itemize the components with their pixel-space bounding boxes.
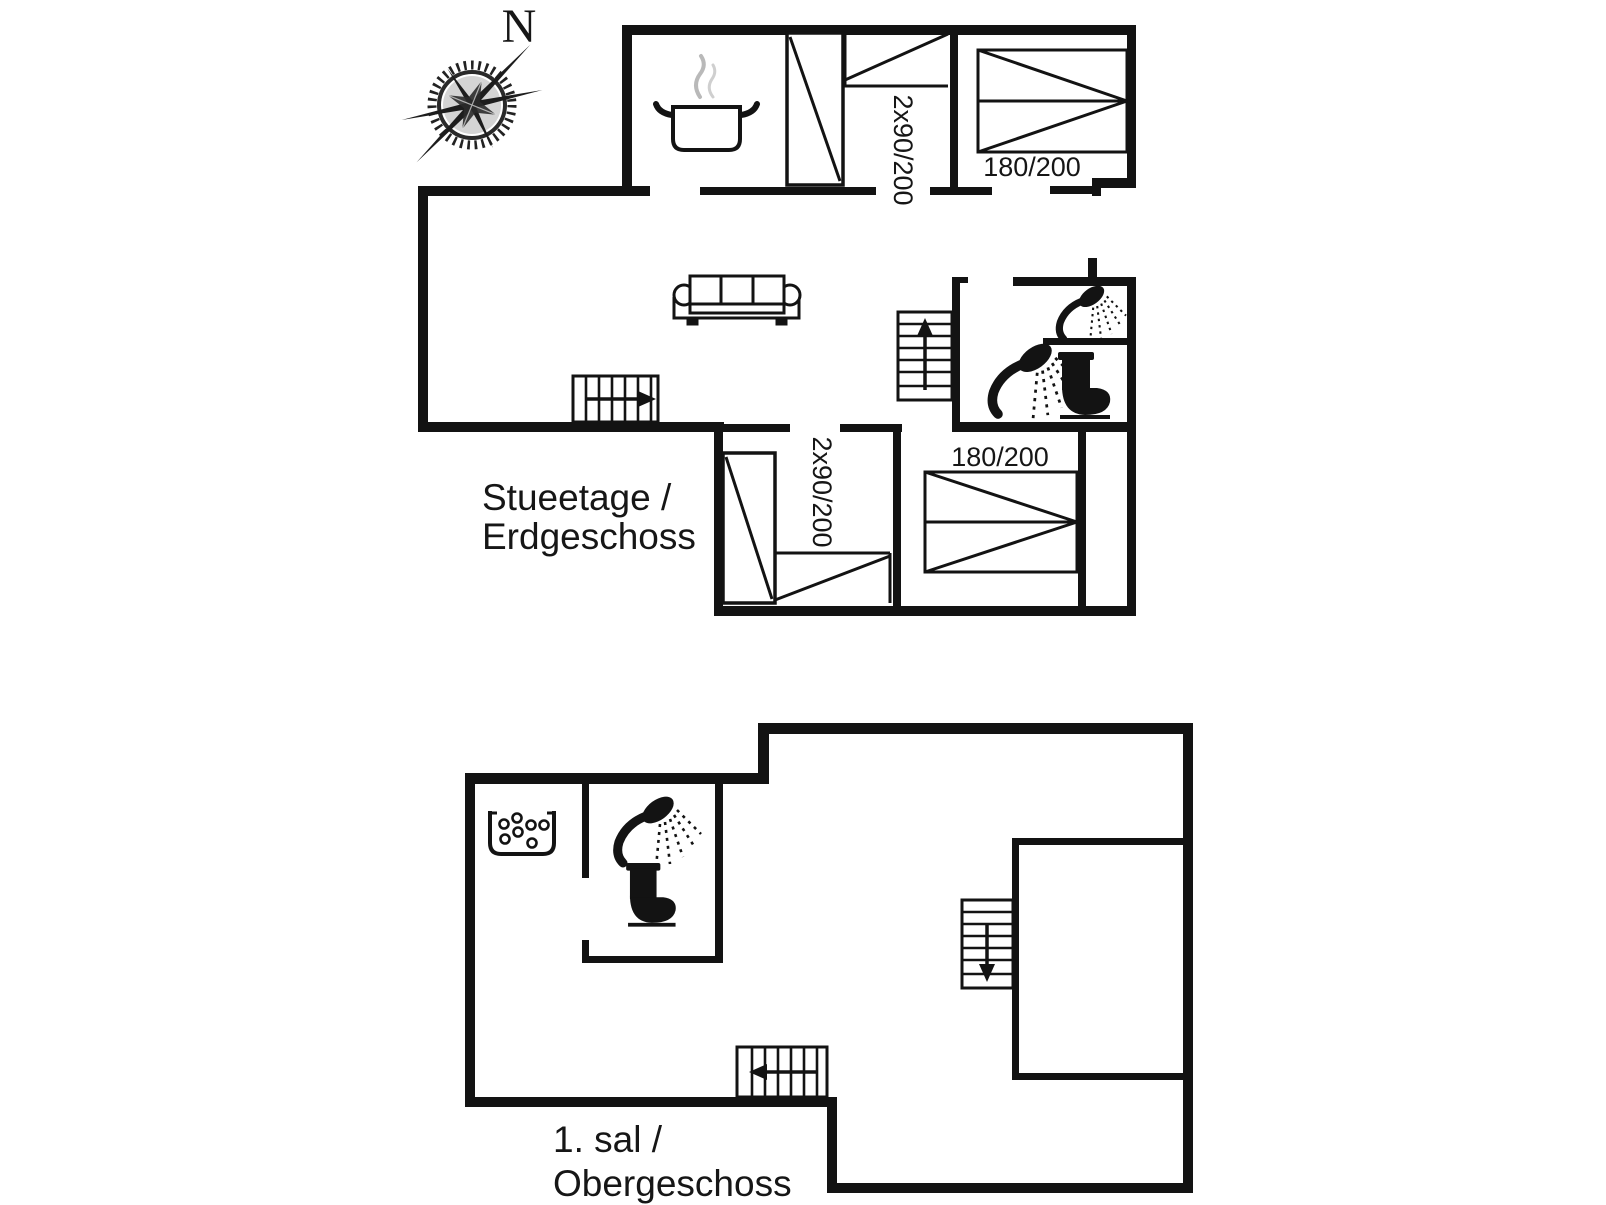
shower-head-icon: [618, 791, 701, 868]
plan-drawing-segment: [925, 472, 1077, 522]
plan-drawing-segment: [1012, 1073, 1193, 1080]
plan-drawing-segment: [527, 821, 536, 830]
plan-drawing-segment: [777, 318, 786, 324]
plan-drawing-segment: [688, 318, 697, 324]
plan-drawing-segment: [930, 187, 992, 195]
plan-drawing-segment: [622, 25, 1135, 35]
plan-drawing-segment: [1078, 424, 1086, 609]
plan-drawing-segment: [1013, 277, 1136, 286]
single-bed-top: [978, 50, 1127, 152]
shower-head-icon: [1059, 281, 1126, 342]
plan-drawing-segment: [714, 606, 1136, 616]
plan-drawing-segment: [758, 723, 1193, 734]
north-label: N: [502, 0, 537, 53]
plan-drawing-segment: [840, 424, 902, 432]
plan-drawing-segment: [1183, 723, 1193, 1193]
stairs-right-arrow-icon: [573, 376, 658, 422]
plan-drawing-segment: [465, 773, 475, 1107]
plan-drawing-segment: [696, 56, 704, 97]
plan-drawing-segment: [582, 956, 723, 963]
plan-drawing-segment: [656, 104, 672, 115]
plan-drawing-segment: [700, 187, 876, 195]
plan-drawing-segment: [418, 422, 724, 432]
double-bed-top: 2x90/200: [845, 33, 948, 206]
plan-drawing-segment: Stueetage /: [482, 477, 672, 518]
stairs-down-arrow-icon: [962, 900, 1013, 988]
plan-drawing-segment: [978, 50, 1127, 101]
single-bed-bottom: [925, 472, 1077, 572]
plan-drawing-segment: [540, 821, 549, 830]
plan-drawing-segment: [622, 25, 632, 195]
plan-drawing-segment: Obergeschoss: [553, 1163, 792, 1204]
plan-drawing-segment: [513, 814, 522, 823]
plan-drawing-segment: [1127, 422, 1136, 616]
plan-drawing-segment: [709, 65, 715, 97]
plan-drawing-segment: [893, 424, 901, 609]
ground-floor-plan: 2x90/200 180/200: [418, 25, 1136, 616]
upper-floor-plan: 1. sal / Obergeschoss: [465, 723, 1193, 1204]
plan-drawing-segment: [714, 424, 790, 432]
upper-floor-label: 1. sal / Obergeschoss: [553, 1119, 792, 1204]
plan-drawing-segment: [673, 107, 740, 150]
floor-plan-canvas: N: [0, 0, 1606, 1205]
plan-drawing-segment: [528, 839, 537, 848]
plan-drawing-segment: [978, 101, 1127, 152]
plan-drawing-segment: [925, 522, 1077, 572]
plan-drawing-segment: [1050, 186, 1094, 194]
plan-drawing-segment: [741, 104, 757, 115]
plan-drawing-segment: [467, 773, 769, 784]
plan-drawing-segment: [514, 828, 523, 837]
cooking-pot-icon: [656, 56, 757, 150]
wardrobe-icon: [787, 33, 843, 185]
double-bed-bottom: 2x90/200: [775, 436, 890, 603]
stairs-left-arrow-icon: [737, 1047, 827, 1097]
plan-drawing-segment: [827, 1183, 1193, 1193]
plan-drawing-segment: [715, 773, 723, 963]
bed-size-label: 180/200: [983, 152, 1081, 182]
plan-drawing-segment: [500, 820, 509, 829]
plan-drawing-segment: [501, 835, 510, 844]
whirlpool-tub-icon: [490, 811, 554, 854]
bed-size-label: 2x90/200: [807, 436, 837, 547]
plan-drawing-segment: [582, 783, 589, 878]
plan-drawing-segment: [950, 25, 958, 195]
plan-drawing-segment: [690, 276, 784, 304]
sofa-icon: [674, 276, 800, 324]
toilet-icon: [626, 863, 676, 927]
plan-drawing-segment: [1088, 258, 1097, 281]
wardrobe-icon: [723, 453, 775, 603]
plan-drawing-segment: [952, 422, 1136, 432]
plan-drawing-segment: [845, 33, 948, 86]
plan-drawing-segment: [690, 304, 784, 313]
floor-plan-image: N: [0, 0, 1606, 1205]
stairs-up-arrow-icon: [898, 312, 952, 400]
plan-drawing-segment: [500, 814, 549, 848]
plan-drawing-segment: [418, 186, 650, 196]
plan-drawing-segment: [1012, 838, 1193, 845]
plan-drawing-segment: Erdgeschoss: [482, 516, 696, 557]
bed-size-label: 2x90/200: [888, 94, 918, 205]
plan-drawing-segment: 1. sal /: [553, 1119, 663, 1160]
plan-drawing-segment: [1127, 277, 1136, 431]
plan-drawing-segment: [418, 186, 428, 432]
ground-floor-label: Stueetage / Erdgeschoss: [482, 477, 696, 557]
compass-rose: [401, 42, 543, 165]
bed-size-label: 180/200: [951, 442, 1049, 472]
plan-drawing-segment: [827, 1097, 837, 1193]
toilet-icon: [1058, 352, 1110, 419]
